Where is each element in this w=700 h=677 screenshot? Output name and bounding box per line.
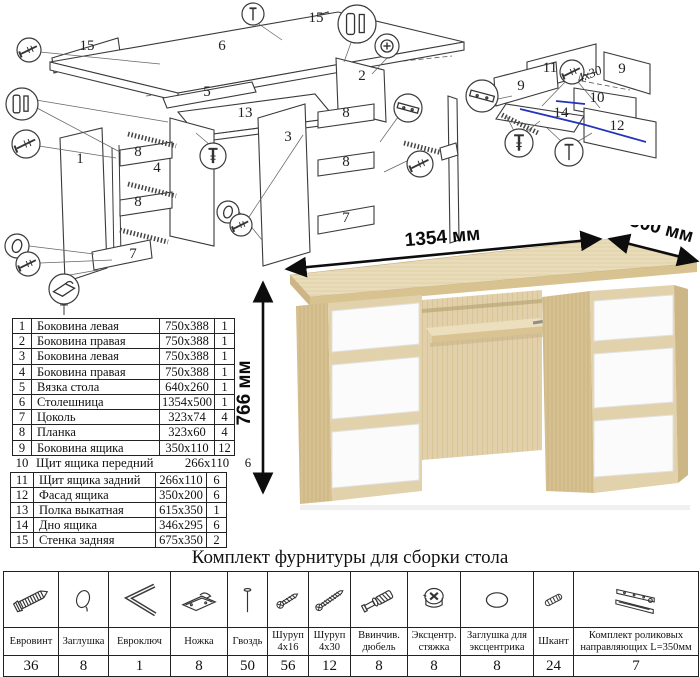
part-size: 266x110 — [156, 473, 207, 487]
part-size: 640x260 — [160, 380, 215, 394]
desk-render: 1354 мм 500 мм 766 мм — [230, 225, 700, 548]
foot-icon — [171, 572, 227, 628]
parts-table-block-1: 1Боковина левая750x38812Боковина правая7… — [12, 318, 235, 456]
callout-dowel — [338, 5, 376, 43]
part-number: 5 — [13, 380, 32, 394]
part-row: 3Боковина левая750x3881 — [13, 349, 234, 364]
part-number-label: 10 — [590, 90, 605, 106]
part-number-label: 7 — [342, 210, 350, 226]
part-qty: 1 — [207, 503, 226, 517]
part-size: 350x200 — [156, 488, 207, 502]
part-size: 323x60 — [160, 425, 215, 439]
part-size: 266x110 — [178, 456, 236, 472]
part-name: Вязка стола — [32, 380, 160, 394]
hardware-item-qty: 56 — [268, 656, 308, 676]
hardware-item-qty: 50 — [228, 656, 267, 676]
hardware-item-cap: Заглушка8 — [59, 572, 109, 676]
part-number: 11 — [11, 473, 34, 487]
part-row: 6Столешница1354x5001 — [13, 395, 234, 410]
callout-screw — [16, 252, 40, 276]
part-qty: 6 — [207, 488, 226, 502]
hardware-item-hexkey: Евроключ1 — [109, 572, 171, 676]
part-number: 15 — [11, 533, 34, 547]
hardware-item-nail: Гвоздь50 — [228, 572, 268, 676]
hexkey-icon — [109, 572, 170, 628]
drawer-slide-rail — [120, 230, 168, 242]
part-number: 10 — [10, 456, 34, 472]
hardware-item-eccentric: Эксцентр. стяжка8 — [408, 572, 461, 676]
hardware-item-name: Комплект роликовых направляющих L=350мм — [574, 628, 698, 656]
hardware-item-shkant: Шкант24 — [534, 572, 574, 676]
drawer-front — [594, 295, 673, 341]
hardware-item-name: Заглушка — [59, 628, 108, 656]
hardware-item-name: Шкант — [534, 628, 573, 656]
part-number: 13 — [11, 503, 34, 517]
part-number-label: 14 — [554, 105, 570, 121]
hardware-item-name: Эксцентр. стяжка — [408, 628, 460, 656]
part-row: 15Стенка задняя675x3502 — [11, 533, 226, 547]
hardware-item-cap-ecc: Заглушка для эксцентрика8 — [461, 572, 534, 676]
hardware-item-qty: 8 — [408, 656, 460, 676]
hardware-item-qty: 8 — [171, 656, 227, 676]
part-number: 8 — [13, 425, 32, 439]
hardware-item-name: Шуруп 4x16 — [268, 628, 308, 656]
part-row: 12Фасад ящика350x2006 — [11, 488, 226, 503]
screw-short-icon — [268, 572, 308, 628]
slat — [120, 142, 172, 166]
hardware-item-dowel-screw: Ввинчив. дюбель8 — [351, 572, 408, 676]
part-number-label: 15 — [309, 10, 324, 26]
hardware-item-screw-short: Шуруп 4x1656 — [268, 572, 309, 676]
right-edge-panel — [448, 96, 459, 243]
nail-icon — [228, 572, 267, 628]
part-size: 615x350 — [156, 503, 207, 517]
left-pedestal-side — [296, 303, 332, 504]
part-size: 750x388 — [160, 319, 215, 333]
callout-nail — [242, 3, 264, 25]
instruction-sheet: 1561551313488728871199101412 4x30 1Боков… — [0, 0, 700, 677]
hardware-item-foot: Ножка8 — [171, 572, 228, 676]
callout-rail — [466, 80, 498, 112]
callout-bolt — [505, 129, 533, 157]
cap-ecc-icon — [461, 572, 533, 628]
part-name: Боковина левая — [32, 319, 160, 333]
part-name: Боковина левая — [32, 349, 160, 363]
callout-bolt — [200, 143, 226, 169]
hardware-item-qty: 24 — [534, 656, 573, 676]
part-size: 750x388 — [160, 334, 215, 348]
part-number-label: 15 — [80, 38, 95, 54]
callout-nail — [555, 138, 583, 166]
part-name: Щит ящика передний — [34, 456, 178, 472]
part-number-label: 8 — [134, 194, 142, 210]
hardware-item-name: Евровинт — [4, 628, 58, 656]
part-name: Фасад ящика — [34, 488, 156, 502]
hardware-item-rails: Комплект роликовых направляющих L=350мм7 — [574, 572, 698, 676]
floor-shadow — [300, 505, 690, 510]
part-row: 2Боковина правая750x3881 — [13, 334, 234, 349]
part-row: 7Цоколь323x744 — [13, 410, 234, 425]
callout-rail — [394, 94, 422, 122]
part-name: Боковина правая — [32, 365, 160, 379]
part-number-label: 7 — [129, 246, 137, 262]
hardware-item-qty: 36 — [4, 656, 58, 676]
hardware-item-name: Ножка — [171, 628, 227, 656]
parts-table-block-2: 11Щит ящика задний266x110612Фасад ящика3… — [10, 472, 227, 548]
hardware-item-screw-long: Шуруп 4x3012 — [309, 572, 351, 676]
part-size: 350x110 — [160, 441, 215, 455]
part-qty: 6 — [207, 473, 226, 487]
hardware-item-name: Шуруп 4x30 — [309, 628, 350, 656]
euroscrew-icon — [4, 572, 58, 628]
hardware-item-qty: 8 — [351, 656, 407, 676]
parts-list-table: 1Боковина левая750x38812Боковина правая7… — [8, 318, 248, 548]
drawer-front — [332, 303, 419, 352]
hardware-item-qty: 12 — [309, 656, 350, 676]
part-row: 1Боковина левая750x3881 — [13, 319, 234, 334]
hardware-item-qty: 7 — [574, 656, 698, 676]
hardware-item-name: Заглушка для эксцентрика — [461, 628, 533, 656]
hardware-kit-table: Евровинт36Заглушка8Евроключ1Ножка8Гвоздь… — [3, 571, 699, 677]
drawer-front — [594, 348, 673, 408]
parts-table-row-10: 10Щит ящика передний266x1106 — [10, 456, 236, 472]
part-qty: 2 — [207, 533, 226, 547]
part-name: Полка выкатная — [34, 503, 156, 517]
part-number: 4 — [13, 365, 32, 379]
part-size: 1354x500 — [160, 395, 215, 409]
part-name: Щит ящика задний — [34, 473, 156, 487]
part-number-label: 8 — [342, 105, 350, 121]
part-size: 750x388 — [160, 365, 215, 379]
part-row: 4Боковина правая750x3881 — [13, 365, 234, 380]
part-row: 13Полка выкатная615x3501 — [11, 503, 226, 518]
rails-icon — [574, 572, 698, 628]
part-number: 2 — [13, 334, 32, 348]
drawer-front — [332, 424, 419, 488]
callout-screw — [407, 151, 433, 177]
part-name: Стенка задняя — [34, 533, 156, 547]
cap-icon — [59, 572, 108, 628]
part-size: 323x74 — [160, 410, 215, 424]
desk-product-image: 1354 мм 500 мм 766 мм — [230, 225, 700, 548]
part-number-label: 8 — [342, 154, 350, 170]
part-size: 750x388 — [160, 349, 215, 363]
part-number: 9 — [13, 441, 32, 455]
width-dimension-label: 1354 мм — [404, 225, 481, 251]
part-number: 6 — [13, 395, 32, 409]
slat — [120, 192, 172, 216]
part-number: 7 — [13, 410, 32, 424]
part-number-label: 11 — [543, 60, 557, 76]
part-number: 1 — [13, 319, 32, 333]
part-row: 14Дно ящика346x2956 — [11, 518, 226, 533]
hardware-item-euroscrew: Евровинт36 — [4, 572, 59, 676]
callout-screw — [12, 130, 40, 158]
drawer-front — [332, 357, 419, 419]
right-pedestal-side — [542, 291, 594, 493]
screw-long-icon — [309, 572, 350, 628]
shkant-icon — [534, 572, 573, 628]
part-number-label: 5 — [203, 84, 211, 100]
hardware-item-name: Евроключ — [109, 628, 170, 656]
part-number-label: 12 — [610, 118, 625, 134]
callout-dowel — [6, 88, 38, 120]
hardware-item-name: Ввинчив. дюбель — [351, 628, 407, 656]
part-number: 14 — [11, 518, 34, 532]
part-row: 5Вязка стола640x2601 — [13, 380, 234, 395]
part-number-label: 6 — [218, 38, 226, 54]
part-name: Боковина ящика — [32, 441, 160, 455]
part-name: Цоколь — [32, 410, 160, 424]
part-qty: 6 — [207, 518, 226, 532]
hardware-item-qty: 8 — [461, 656, 533, 676]
part-row: 8Планка323x604 — [13, 425, 234, 440]
dowel-screw-icon — [351, 572, 407, 628]
part-number-label: 2 — [358, 68, 366, 84]
part-number-label: 9 — [517, 78, 525, 94]
part-name: Боковина правая — [32, 334, 160, 348]
part-number-label: 4 — [153, 160, 161, 176]
part-number-label: 3 — [284, 129, 292, 145]
hardware-item-name: Гвоздь — [228, 628, 267, 656]
drawer-side-panel — [604, 52, 650, 94]
callout-foot — [49, 274, 79, 304]
part-size: 675x350 — [156, 533, 207, 547]
part-name: Дно ящика — [34, 518, 156, 532]
back-panel — [422, 290, 542, 460]
part-number-label: 8 — [134, 144, 142, 160]
part-number-label: 9 — [618, 61, 626, 77]
hardware-item-qty: 8 — [59, 656, 108, 676]
eccentric-icon — [408, 572, 460, 628]
part-number-label: 1 — [76, 151, 84, 167]
part-row: 9Боковина ящика350x11012 — [13, 441, 234, 455]
left-inner-panel — [170, 118, 214, 246]
drawer-front — [594, 415, 673, 477]
part-number-label: 13 — [238, 105, 253, 121]
part-name: Планка — [32, 425, 160, 439]
part-row: 11Щит ящика задний266x1106 — [11, 473, 226, 488]
part-name: Столешница — [32, 395, 160, 409]
part-size: 346x295 — [156, 518, 207, 532]
part-number: 12 — [11, 488, 34, 502]
callout-screw — [17, 38, 41, 62]
callout-ecc — [375, 34, 399, 58]
hardware-item-qty: 1 — [109, 656, 170, 676]
depth-dimension-label: 500 мм — [627, 225, 695, 247]
part-number: 3 — [13, 349, 32, 363]
height-dimension-label: 766 мм — [234, 360, 255, 425]
hardware-kit-title: Комплект фурнитуры для сборки стола — [0, 547, 700, 569]
